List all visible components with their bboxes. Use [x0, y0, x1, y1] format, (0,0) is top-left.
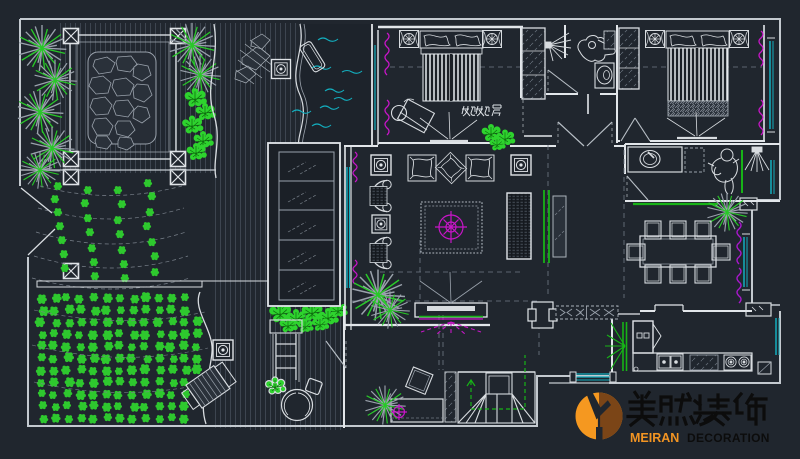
svg-text:MEIRAN: MEIRAN — [630, 431, 679, 445]
svg-text:DECORATION: DECORATION — [687, 431, 770, 445]
